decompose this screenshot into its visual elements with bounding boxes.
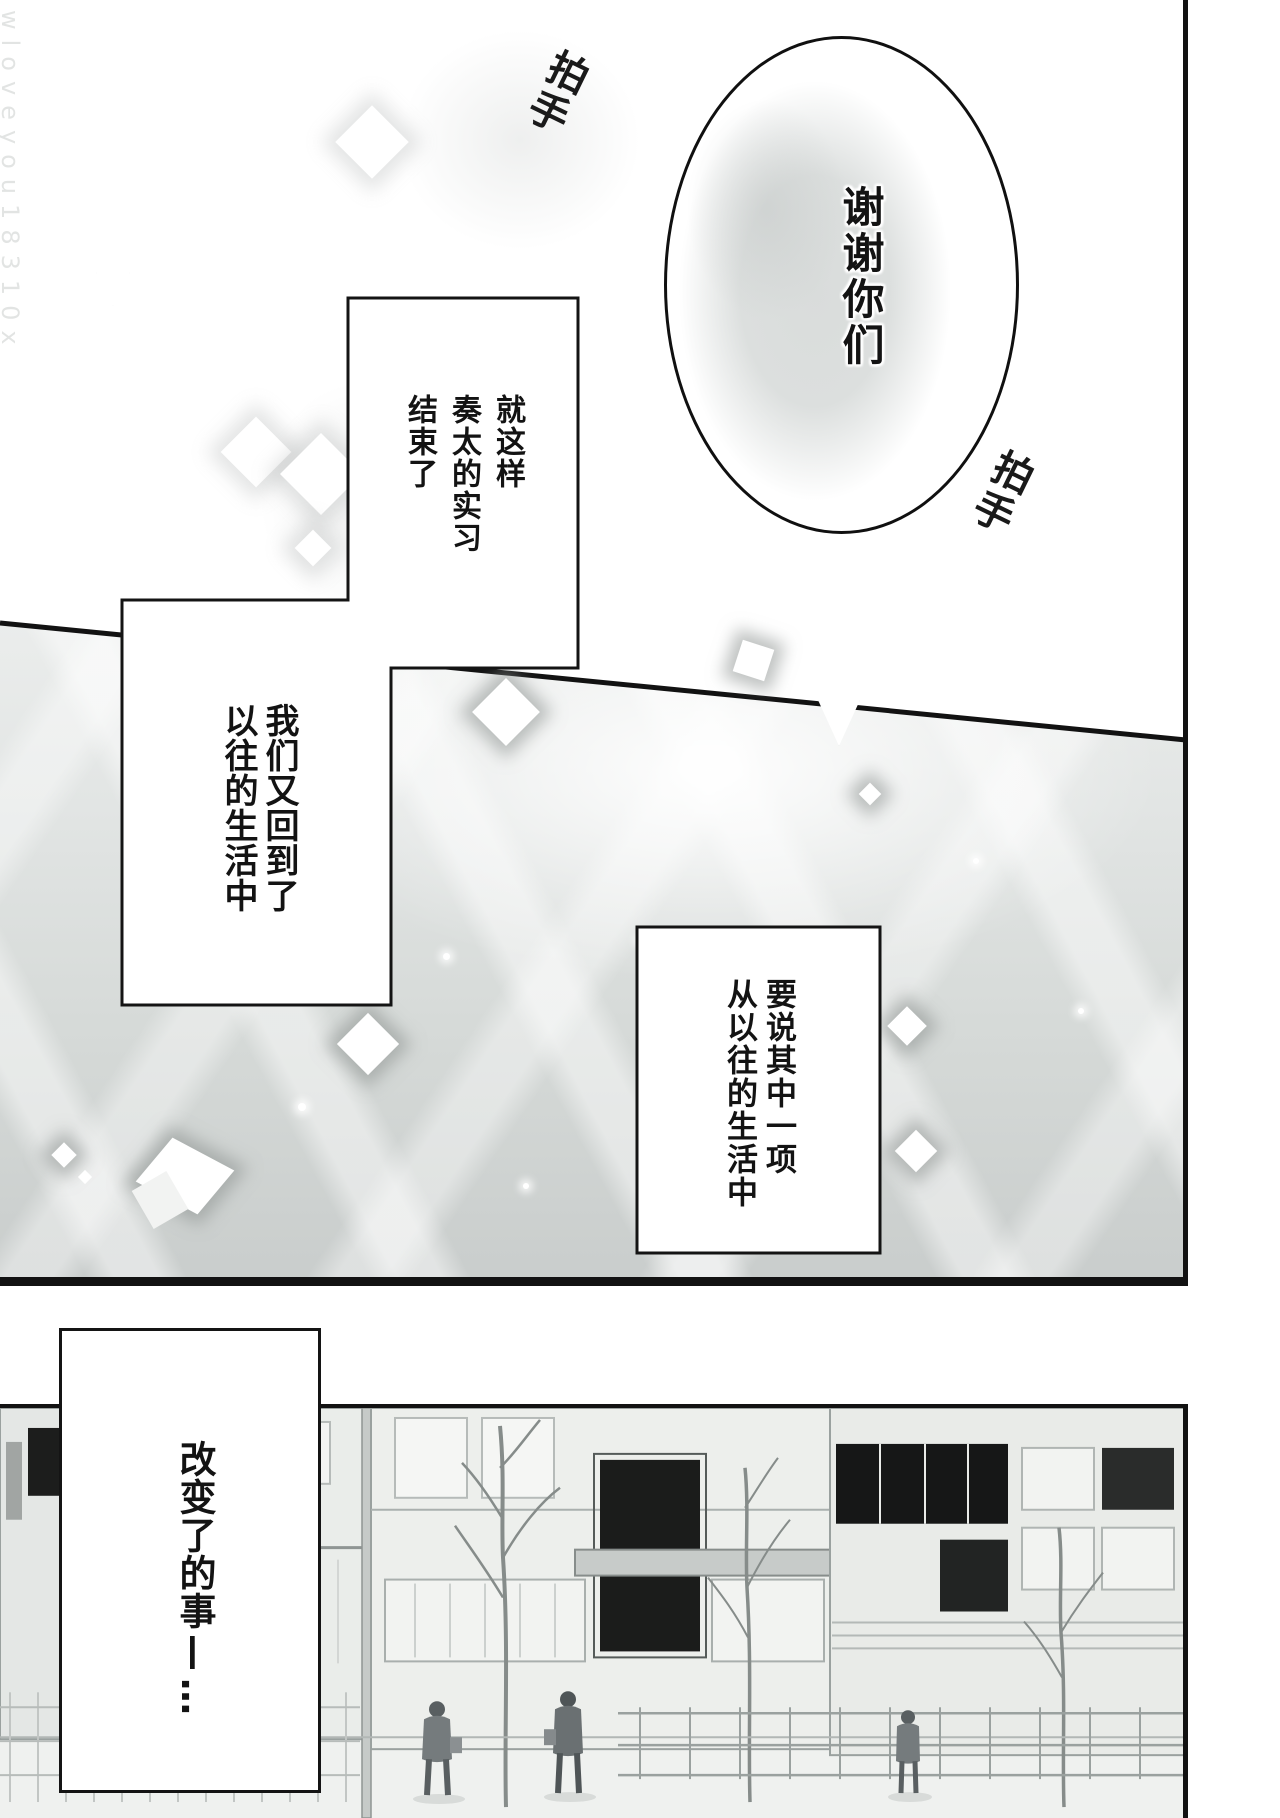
caption-text-2: 我们又回到了 以往的生活中 [217, 703, 299, 913]
dark-window-band [836, 1444, 1008, 1524]
panel-3-right-border [1183, 1404, 1188, 1818]
caption-text-3: 要说其中一项 从以往的生活中 [719, 978, 797, 1209]
manga-page: wloveyou18310x 谢谢你们 拍手 拍手 [0, 0, 1280, 1818]
caption-text-4: 改变了的事—… [174, 1440, 214, 1718]
caption-text-1: 就这样 奏太的实习 结束了 [397, 394, 529, 554]
caption-text-4-ellipsis: … [172, 1676, 216, 1716]
dark-window [940, 1540, 1008, 1612]
caption-text-4-dash: — [172, 1632, 216, 1672]
building-right [830, 1408, 1186, 1755]
utility-pole [362, 1408, 371, 1818]
storefront-center [371, 1408, 830, 1749]
caption-text-4-main: 改变了的事 [173, 1440, 216, 1630]
awning [575, 1550, 830, 1576]
